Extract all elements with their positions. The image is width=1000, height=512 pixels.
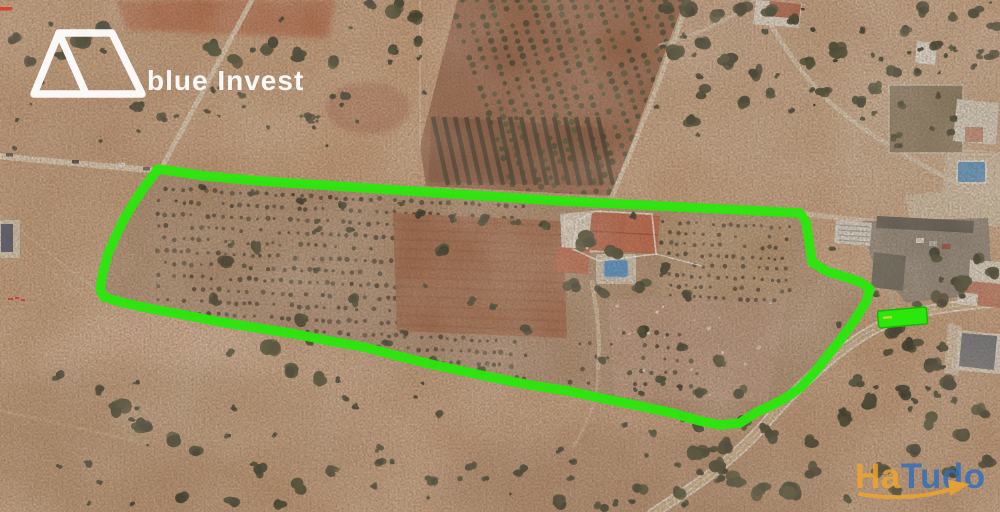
aerial-photo-canvas: blue Invest HaTudo (0, 0, 1000, 512)
hatudo-watermark: HaTudo (855, 457, 986, 497)
hatudo-text-ha: Ha (855, 457, 901, 496)
blue-invest-logo-text: blue Invest (147, 65, 304, 96)
hatudo-logo-text: HaTudo (855, 457, 986, 496)
listing-photo: blue Invest HaTudo (0, 0, 1000, 512)
